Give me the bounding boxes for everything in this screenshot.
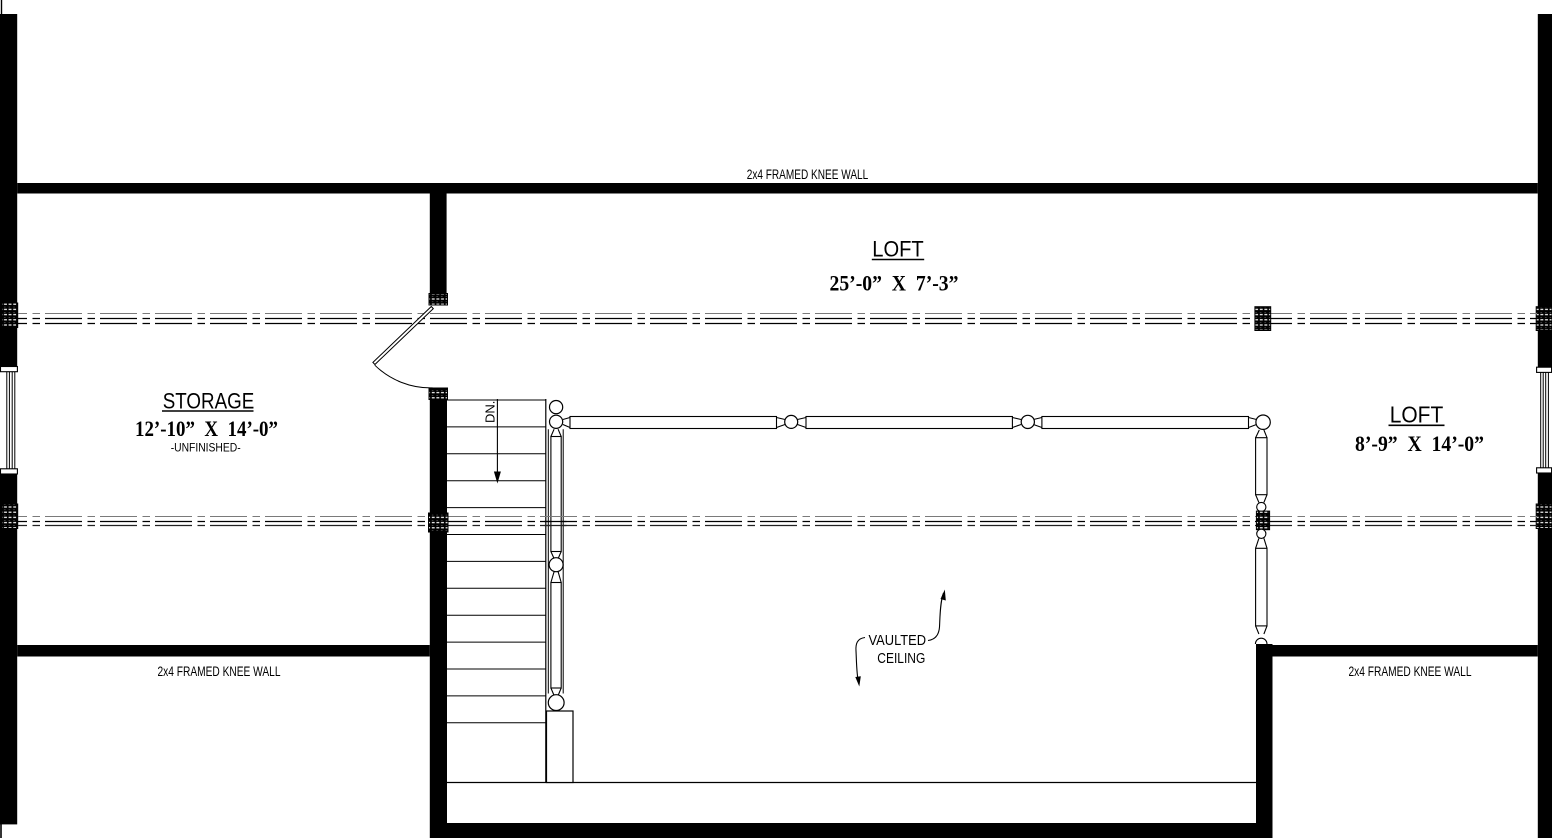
svg-text:-UNFINISHED-: -UNFINISHED-	[171, 443, 241, 455]
svg-text:VAULTED: VAULTED	[869, 632, 927, 649]
svg-text:STORAGE: STORAGE	[163, 389, 255, 414]
svg-text:2x4 FRAMED KNEE WALL: 2x4 FRAMED KNEE WALL	[1349, 664, 1472, 679]
svg-text:CEILING: CEILING	[877, 650, 925, 667]
svg-text:DN.: DN.	[482, 401, 497, 423]
svg-text:LOFT: LOFT	[1390, 401, 1444, 427]
svg-text:LOFT: LOFT	[872, 237, 924, 262]
svg-text:12’-10” X 14’-0”: 12’-10” X 14’-0”	[135, 416, 278, 441]
svg-text:8’-9” X 14’-0”: 8’-9” X 14’-0”	[1355, 431, 1484, 456]
svg-text:2x4 FRAMED KNEE WALL: 2x4 FRAMED KNEE WALL	[747, 167, 869, 182]
svg-text:25’-0” X 7’-3”: 25’-0” X 7’-3”	[830, 271, 959, 296]
svg-text:2x4 FRAMED KNEE WALL: 2x4 FRAMED KNEE WALL	[158, 664, 281, 679]
